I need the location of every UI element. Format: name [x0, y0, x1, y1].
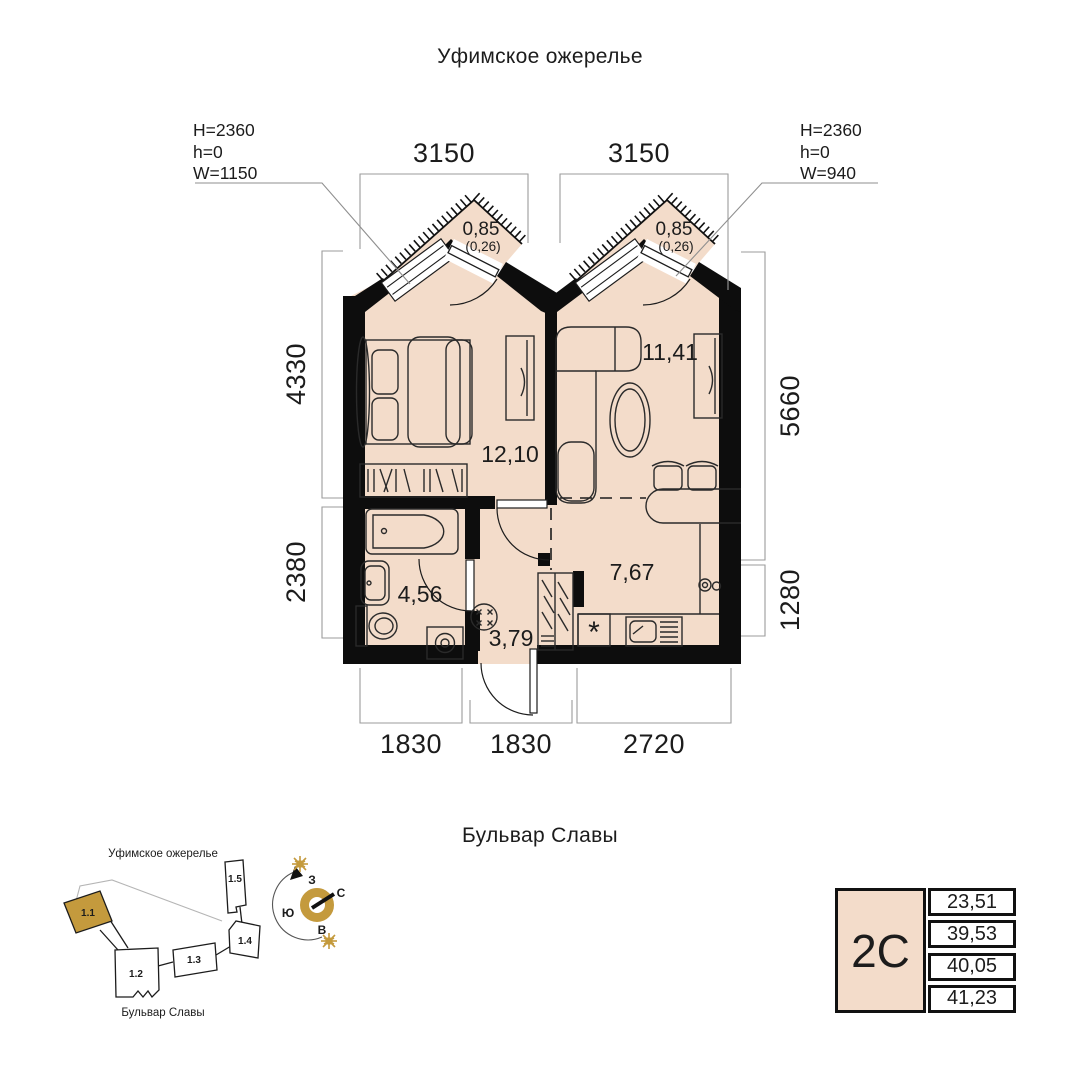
compass-east: В [318, 923, 327, 937]
dim-bottom-1: 1830 [380, 729, 442, 759]
wall-party [545, 298, 557, 505]
wall-bathroom-top [358, 496, 495, 509]
compass-west: З [308, 873, 316, 887]
floorplan-page: Уфимское ожерелье Бульвар Славы [0, 0, 1080, 1081]
balcony-left-reduced: (0,26) [465, 239, 500, 254]
dim-left-upper: 4330 [281, 343, 311, 405]
wall-bottom-left [343, 645, 478, 664]
plan-value: 39,53 [928, 920, 1016, 948]
window-spec-left-width: W=1150 [193, 163, 258, 183]
window-spec-left: H=2360 h=0 W=1150 [193, 120, 410, 284]
building-label-1-5: 1.5 [228, 874, 242, 885]
building-1-5 [225, 860, 246, 913]
compass: З С Ю В [273, 856, 346, 949]
kitchen-marker: * [588, 616, 600, 649]
building-label-1-2: 1.2 [129, 969, 143, 980]
room-label-kitchen: 7,67 [610, 559, 655, 585]
sun-icon [292, 856, 308, 872]
wall-bathroom-right-lower [465, 611, 480, 651]
window-spec-right-width: W=940 [800, 163, 856, 183]
room-label-hall: 3,79 [489, 625, 534, 651]
building-label-1-3: 1.3 [187, 955, 201, 966]
window-spec-right-sill: h=0 [800, 142, 830, 162]
window-spec-right-height: H=2360 [800, 120, 862, 140]
wall-bottom-right [537, 645, 741, 664]
plan-value: 40,05 [928, 953, 1016, 981]
plan-values: 23,51 39,53 40,05 41,23 [928, 888, 1017, 1013]
dim-left-lower: 2380 [281, 541, 311, 603]
dim-top-right: 3150 [608, 138, 670, 168]
room-label-bedroom: 12,10 [481, 441, 539, 467]
wall-bathroom-right-upper [465, 509, 480, 559]
building-label-1-4: 1.4 [238, 936, 252, 947]
site-map-street: Бульвар Славы [121, 1007, 204, 1019]
compass-north: С [337, 886, 346, 900]
dim-bottom-3: 2720 [623, 729, 685, 759]
window-spec-left-height: H=2360 [193, 120, 255, 140]
balcony-left-area: 0,85 [463, 219, 500, 240]
plan-value: 23,51 [928, 888, 1016, 916]
room-label-living: 11,41 [642, 339, 698, 365]
wall-left [343, 296, 365, 664]
dim-bottom-2: 1830 [490, 729, 552, 759]
leader-line-left [195, 183, 410, 284]
page-title: Уфимское ожерелье [437, 45, 643, 68]
apartment-card[interactable]: 2С 23,51 39,53 40,05 41,23 [835, 888, 1017, 1013]
building-label-1-1: 1.1 [81, 908, 95, 919]
room-label-bathroom: 4,56 [398, 581, 443, 607]
site-map-title: Уфимское ожерелье [108, 848, 218, 860]
dim-right-upper: 5660 [775, 375, 805, 437]
balcony-right-reduced: (0,26) [658, 239, 693, 254]
compass-south: Ю [282, 906, 294, 920]
site-map: Уфимское ожерелье Бульвар Славы 1.1 1.2 … [64, 848, 260, 1019]
dim-top-left: 3150 [413, 138, 475, 168]
plan-value: 41,23 [928, 985, 1016, 1013]
street-label-bottom: Бульвар Славы [462, 824, 618, 847]
window-spec-left-sill: h=0 [193, 142, 223, 162]
plan-type-badge: 2С [835, 888, 926, 1013]
balcony-right-area: 0,85 [656, 219, 693, 240]
wall-hall-post-right [573, 571, 584, 607]
dim-right-lower: 1280 [775, 569, 805, 631]
